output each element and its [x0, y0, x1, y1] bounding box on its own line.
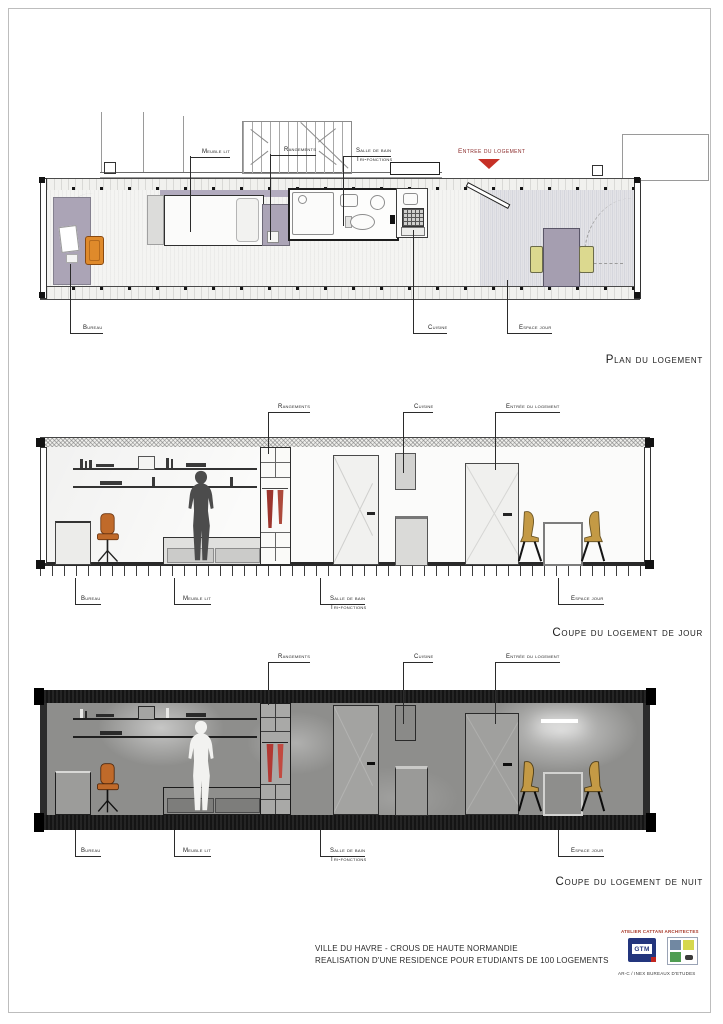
kitchen-counter-night — [395, 766, 428, 816]
bureaux-logo — [667, 937, 698, 965]
label-meuble-lit-nuit: Meuble lit — [174, 848, 211, 857]
kitchen-counter-day — [395, 516, 428, 566]
dining-chair-plan — [530, 246, 543, 273]
label-entree-jour: Entrée du logement — [495, 404, 560, 413]
stove — [402, 208, 424, 227]
shelf-night — [73, 718, 257, 720]
label-entree: Entree du logement — [458, 148, 525, 155]
label-cuisine-nuit: Cuisine — [403, 654, 433, 663]
container-end-wall — [40, 178, 47, 299]
label-bureau-nuit: Bureau — [75, 848, 101, 857]
kitchen-upper-cabinet-night — [395, 705, 416, 741]
coupe-jour-title: Coupe du logement de jour — [552, 627, 703, 639]
human-silhouette-day — [182, 470, 220, 563]
coupe-nuit-title: Coupe du logement de nuit — [556, 876, 703, 888]
bed-side-unit — [147, 195, 164, 245]
column-marker — [592, 165, 603, 176]
end-wall-night — [40, 703, 47, 815]
shelf-box-night — [138, 706, 155, 720]
desk-chair-plan — [85, 236, 104, 265]
wardrobe-section-night — [260, 703, 291, 815]
bed-plan — [164, 195, 264, 246]
shelf-box — [138, 456, 155, 470]
office-chair-night — [92, 762, 128, 814]
end-wall-night — [643, 703, 650, 815]
gtm-logo-text: GTM — [634, 946, 649, 953]
dining-table-plan — [543, 228, 580, 287]
label-meuble-lit-jour: Meuble lit — [174, 596, 211, 605]
dining-chair-plan — [579, 246, 594, 273]
wall-light-strip — [541, 719, 578, 723]
door-gap — [390, 215, 395, 224]
label-cuisine: Cuisine — [413, 325, 447, 334]
entry-arrow-icon — [478, 159, 500, 169]
label-salle-de-bain-jour: Salle de bain — [320, 596, 365, 605]
label-salle-de-bain: Salle de bain — [343, 148, 391, 157]
kitchen-upper-cabinet-day — [395, 453, 416, 490]
label-cuisine-jour: Cuisine — [403, 404, 433, 413]
entry-door-day — [465, 463, 519, 565]
logo-tile-green — [670, 952, 681, 962]
label-rangements-nuit: Rangements — [268, 654, 310, 663]
project-title-line2: REALISATION D'UNE RESIDENCE POUR ETUDIAN… — [315, 955, 609, 967]
logo-tile-yellow — [683, 940, 694, 950]
label-espace-jour-nuit: Espace jour — [558, 848, 604, 857]
corridor-line — [183, 116, 184, 172]
label-tri-fonctions: Tri-fonctions — [356, 157, 392, 164]
desk-section-night — [55, 771, 91, 815]
container-bottom-night — [40, 815, 650, 830]
shelf-night — [73, 736, 257, 738]
corridor-line — [101, 112, 102, 172]
round-basin — [370, 195, 385, 210]
plan-title: Plan du logement — [606, 354, 703, 366]
logo-car-glyph — [685, 955, 693, 960]
bureaux-credit: AR-C / INEX BUREAUX D'ETUDES — [618, 971, 695, 976]
drawing-sheet: Meuble lit Rangements Salle de bain Tri-… — [0, 0, 723, 1024]
dining-table-day — [543, 522, 583, 566]
label-bureau: Bureau — [70, 325, 103, 334]
dining-chair-day — [579, 511, 607, 563]
adjacent-module-outline — [622, 134, 709, 181]
dining-chair-night — [579, 761, 607, 813]
column-marker — [104, 162, 116, 174]
dining-table-night — [543, 772, 583, 816]
wardrobe-section-day — [260, 447, 291, 565]
bathroom-door-night — [333, 705, 379, 815]
kitchen-plan — [396, 188, 428, 238]
dining-chair-day — [516, 511, 544, 563]
project-title-line1: VILLE DU HAVRE - CROUS DE HAUTE NORMANDI… — [315, 943, 518, 955]
shelf — [73, 486, 257, 488]
section-roof-night — [40, 690, 650, 703]
label-meuble-lit: Meuble lit — [190, 149, 230, 158]
wardrobe-plan — [262, 204, 290, 246]
office-chair-day — [92, 512, 128, 564]
bathroom-door-day — [333, 455, 379, 565]
label-entree-nuit: Entrée du logement — [495, 654, 560, 663]
label-rangements-jour: Rangements — [268, 404, 310, 413]
architect-credit: ATELIER CATTANI ARCHITECTES — [621, 929, 699, 934]
container-end-wall — [634, 178, 641, 299]
human-silhouette-night — [182, 720, 220, 813]
label-espace-jour: Espace jour — [507, 325, 552, 334]
label-tri-fonctions-nuit: Tri-fonctions — [330, 857, 366, 864]
rooftop-element — [390, 162, 440, 175]
shelf — [73, 468, 257, 470]
corridor-line — [143, 112, 144, 172]
desk-section-day — [55, 521, 91, 565]
label-tri-fonctions-jour: Tri-fonctions — [330, 605, 366, 612]
label-espace-jour-jour: Espace jour — [558, 596, 604, 605]
logo-tile-blue — [670, 940, 681, 950]
label-bureau-jour: Bureau — [75, 596, 101, 605]
pillow — [236, 198, 259, 242]
entry-door-night — [465, 713, 519, 815]
label-salle-de-bain-nuit: Salle de bain — [320, 848, 365, 857]
gtm-logo: GTM — [628, 938, 656, 962]
kitchen-sink — [403, 193, 418, 205]
container-wall-ticks — [44, 287, 636, 290]
toilet — [350, 214, 375, 230]
label-rangements: Rangements — [270, 147, 316, 156]
dining-chair-night — [516, 761, 544, 813]
